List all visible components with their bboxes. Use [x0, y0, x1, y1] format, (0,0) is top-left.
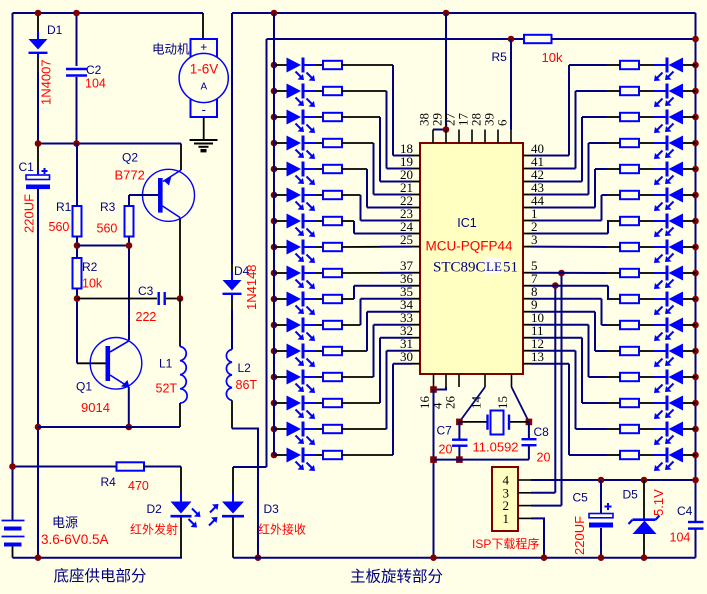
- svg-text:L1: L1: [159, 357, 173, 371]
- svg-text:红外接收: 红外接收: [258, 522, 306, 537]
- svg-text:L2: L2: [238, 361, 252, 375]
- svg-text:D2: D2: [147, 502, 163, 516]
- svg-text:MCU-PQFP44: MCU-PQFP44: [425, 239, 513, 254]
- svg-text:C1: C1: [19, 160, 35, 174]
- svg-text:52T: 52T: [156, 382, 178, 396]
- svg-text:86T: 86T: [236, 378, 258, 392]
- svg-text:C4: C4: [677, 504, 693, 518]
- svg-text:9014: 9014: [81, 400, 110, 415]
- svg-text:底座供电部分: 底座供电部分: [54, 567, 147, 585]
- svg-text:Q2: Q2: [122, 151, 138, 165]
- svg-text:ISP下载程序: ISP下载程序: [472, 536, 539, 551]
- svg-text:13: 13: [531, 349, 544, 364]
- svg-text:470: 470: [128, 479, 149, 493]
- svg-text:15: 15: [495, 396, 510, 409]
- svg-text:104: 104: [85, 77, 106, 91]
- svg-text:1: 1: [503, 511, 510, 526]
- svg-text:3: 3: [531, 232, 538, 247]
- svg-text:104: 104: [670, 531, 691, 545]
- svg-text:1N4148: 1N4148: [244, 264, 259, 310]
- svg-text:STC89C: STC89C: [433, 260, 486, 276]
- svg-text:D1: D1: [47, 23, 63, 37]
- svg-text:D3: D3: [264, 502, 280, 516]
- svg-text:电动机: 电动机: [152, 43, 190, 57]
- svg-text:D5: D5: [623, 488, 639, 502]
- svg-text:-: -: [202, 102, 206, 117]
- svg-text:红外发射: 红外发射: [130, 522, 178, 537]
- svg-text:R5: R5: [492, 50, 508, 64]
- svg-text:R3: R3: [100, 200, 116, 214]
- svg-text:20: 20: [537, 451, 551, 465]
- svg-text:560: 560: [49, 220, 70, 234]
- svg-text:Q1: Q1: [76, 380, 92, 394]
- svg-text:1N4007: 1N4007: [39, 59, 54, 105]
- svg-text:26: 26: [443, 396, 458, 410]
- svg-text:主板旋转部分: 主板旋转部分: [350, 568, 443, 586]
- svg-text:电源: 电源: [52, 515, 78, 530]
- svg-text:C7: C7: [437, 424, 453, 438]
- svg-text:IC1: IC1: [457, 216, 477, 230]
- svg-text:11.0592: 11.0592: [473, 440, 519, 455]
- svg-text:51: 51: [503, 260, 518, 276]
- svg-text:R2: R2: [82, 260, 98, 274]
- svg-text:5.1V: 5.1V: [651, 489, 666, 516]
- svg-text:222: 222: [136, 310, 157, 324]
- svg-text:10k: 10k: [542, 50, 563, 65]
- svg-text:+: +: [200, 40, 207, 54]
- svg-text:20: 20: [439, 443, 453, 457]
- svg-text:6: 6: [495, 119, 510, 126]
- svg-text:B772: B772: [115, 168, 145, 183]
- svg-text:C5: C5: [573, 491, 589, 505]
- svg-text:C2: C2: [86, 63, 102, 77]
- svg-text:30: 30: [400, 349, 413, 364]
- svg-text:3.6-6V0.5A: 3.6-6V0.5A: [41, 532, 109, 547]
- svg-text:R1: R1: [56, 200, 72, 214]
- svg-text:220UF: 220UF: [22, 194, 37, 233]
- svg-text:C8: C8: [534, 425, 550, 439]
- svg-text:25: 25: [400, 232, 413, 247]
- svg-text:1-6V: 1-6V: [190, 62, 219, 77]
- svg-text:R4: R4: [101, 475, 117, 489]
- svg-text:A: A: [200, 82, 207, 93]
- svg-text:C3: C3: [138, 284, 154, 298]
- svg-text:10k: 10k: [82, 277, 103, 291]
- svg-text:LE: LE: [486, 259, 502, 274]
- svg-text:220UF: 220UF: [572, 516, 587, 555]
- svg-text:560: 560: [97, 222, 118, 236]
